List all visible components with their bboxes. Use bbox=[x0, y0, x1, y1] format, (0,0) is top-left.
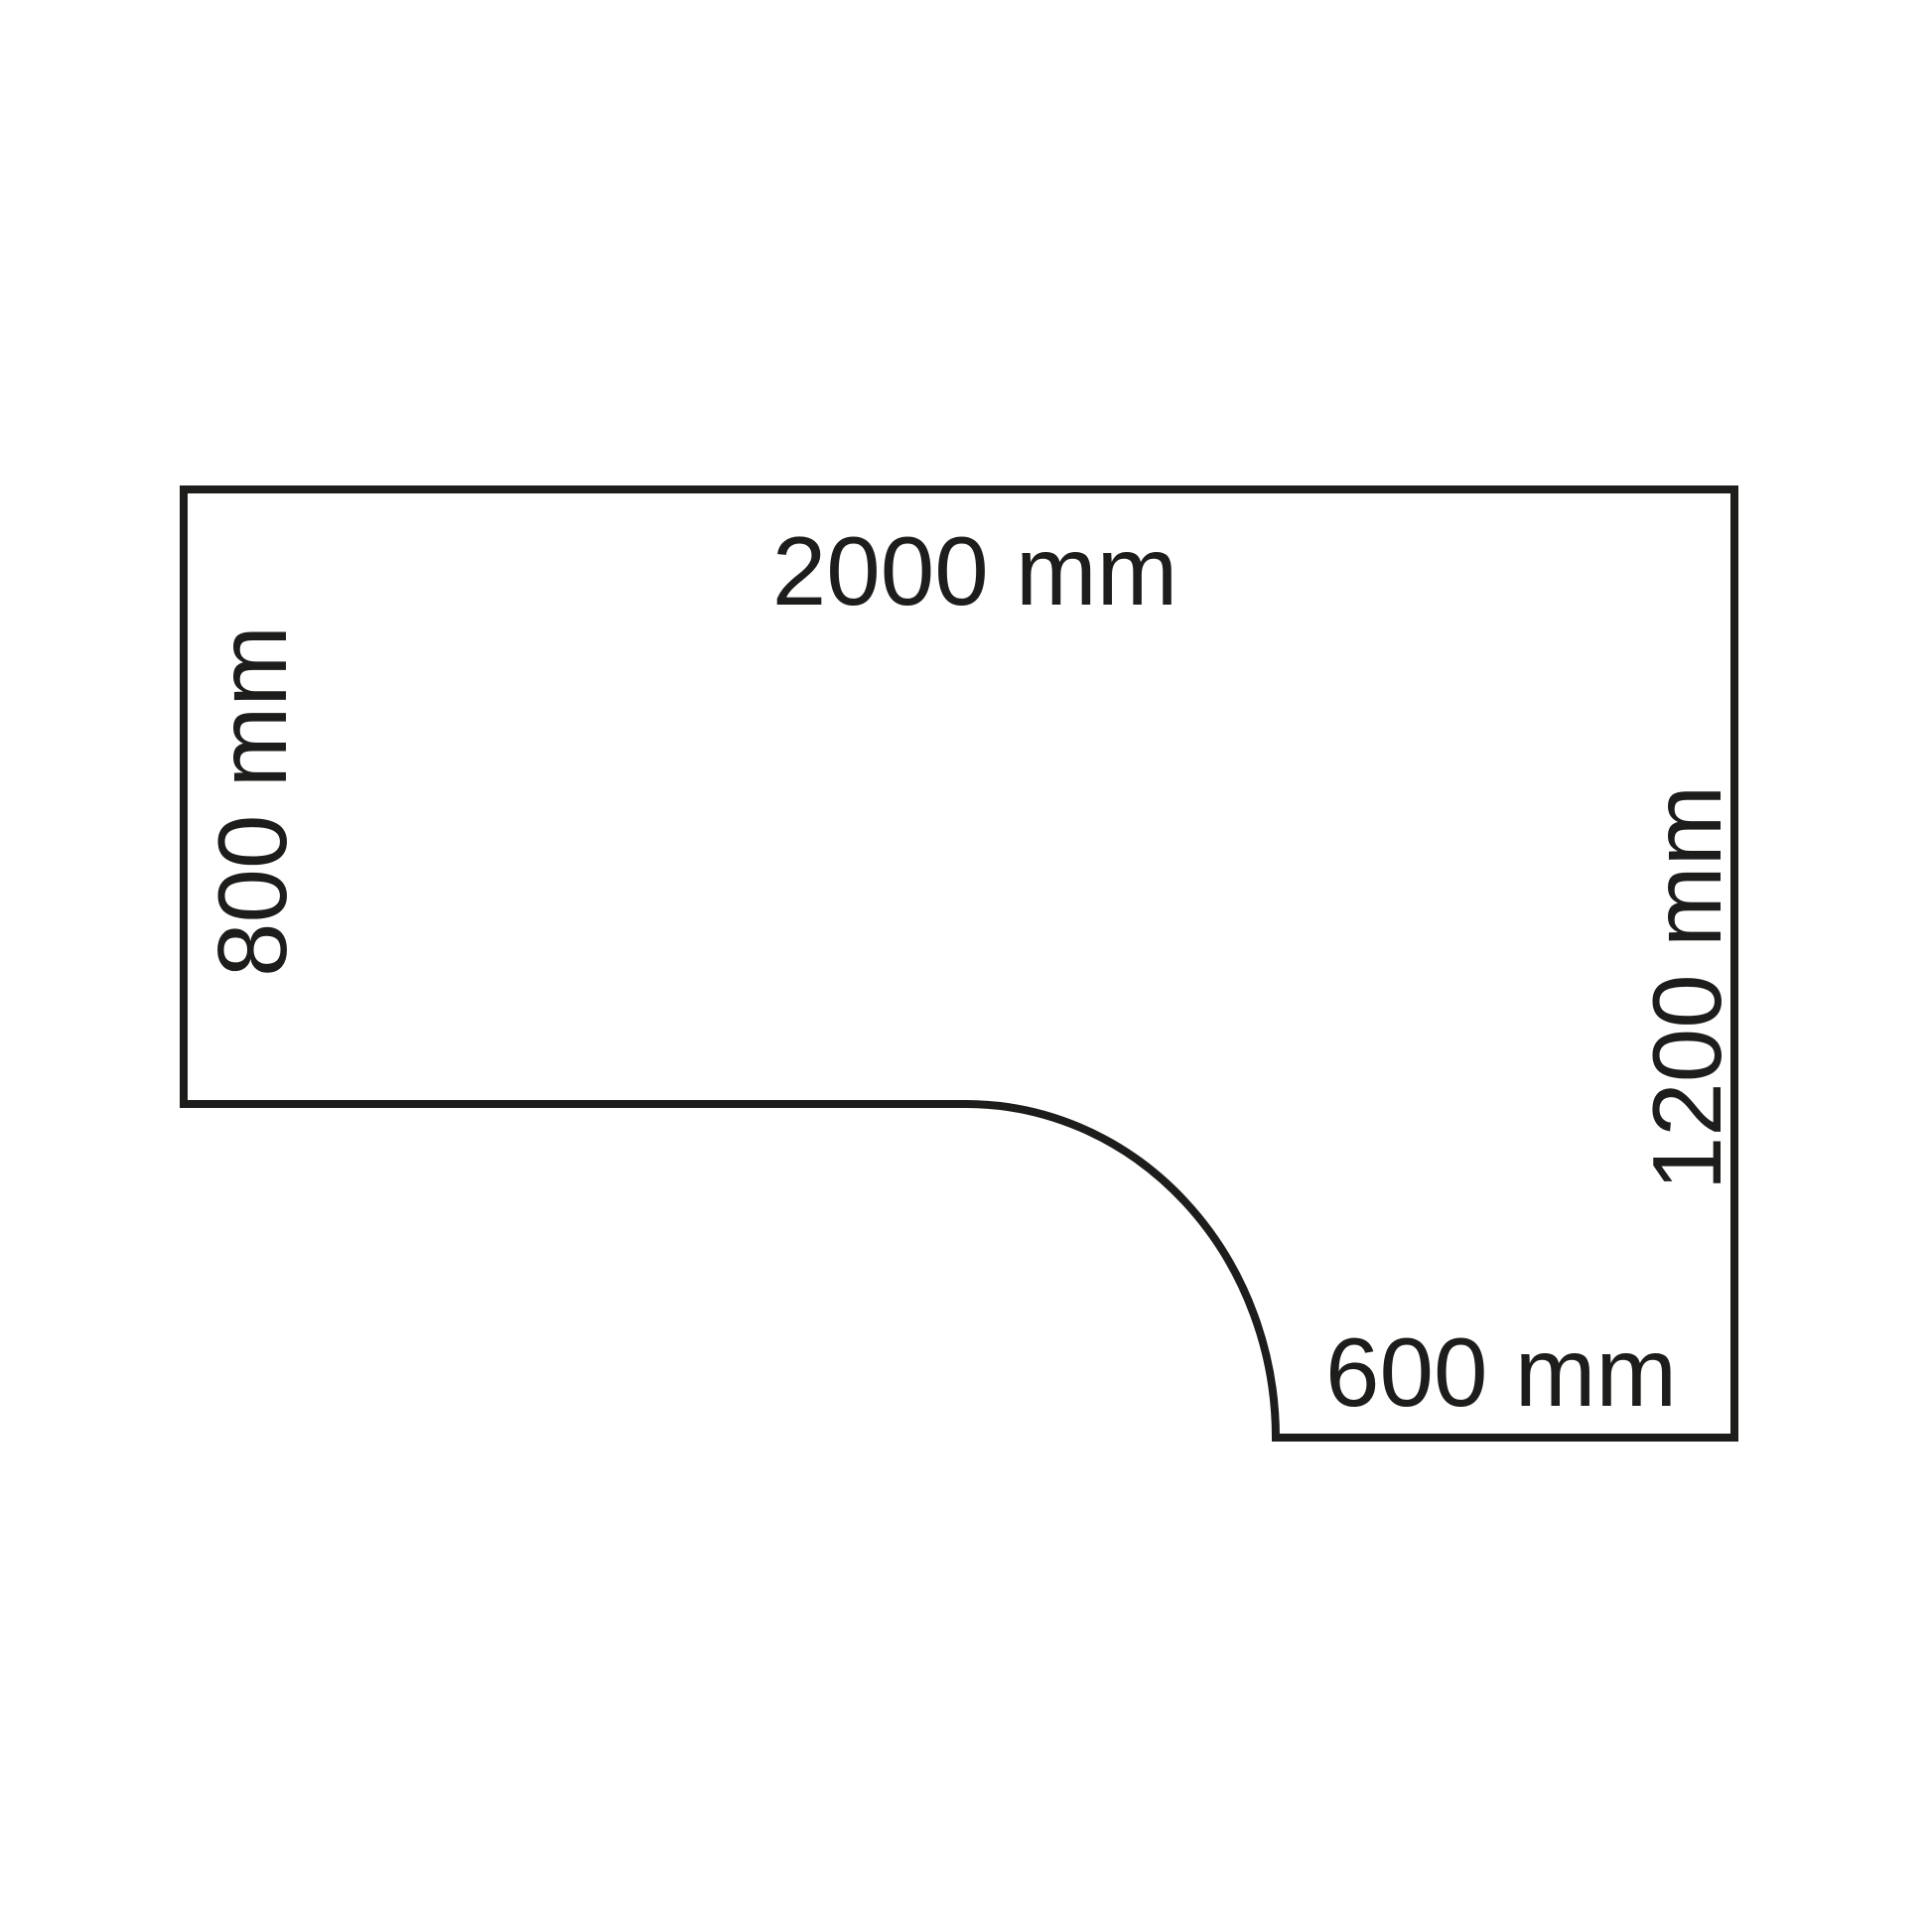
dimension-label-bottom-width: 600 mm bbox=[1325, 1317, 1677, 1427]
desk-outline-shape bbox=[184, 489, 1734, 1438]
dimension-label-right-depth: 1200 mm bbox=[1632, 785, 1741, 1191]
diagram-canvas: 2000 mm 800 mm 1200 mm 600 mm bbox=[0, 0, 1932, 1932]
desk-top-diagram: 2000 mm 800 mm 1200 mm 600 mm bbox=[0, 0, 1932, 1932]
dimension-label-left-depth: 800 mm bbox=[198, 625, 307, 977]
dimension-label-top-width: 2000 mm bbox=[772, 516, 1178, 625]
